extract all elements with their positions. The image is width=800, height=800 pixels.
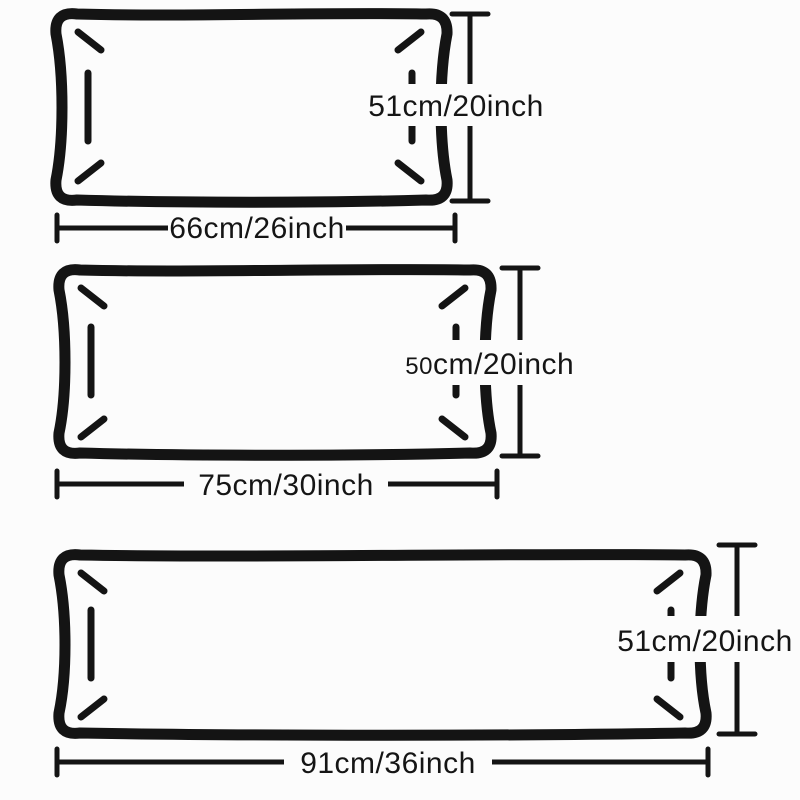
pillow-1-group: 51cm/20inch 66cm/26inch <box>56 14 560 245</box>
pillow-2-height-label-units: cm/20inch <box>433 348 574 381</box>
pillow-2-group: 50 cm/20inch 75cm/30inch <box>57 268 590 502</box>
pillow-size-diagram: 51cm/20inch 66cm/26inch 50 cm/20inch 75c… <box>0 0 800 800</box>
pillow-3-group: 51cm/20inch 91cm/36inch <box>57 545 800 780</box>
pillow-1-height-label: 51cm/20inch <box>368 90 544 123</box>
pillow-2-height-label-number: 50 <box>405 353 433 380</box>
pillow-3-width-label: 91cm/36inch <box>300 747 476 780</box>
diagram-svg: 51cm/20inch 66cm/26inch 50 cm/20inch 75c… <box>0 0 800 800</box>
pillow-1-width-label: 66cm/26inch <box>169 212 345 245</box>
pillow-2-width-label: 75cm/30inch <box>198 469 374 502</box>
pillow-3-height-label: 51cm/20inch <box>617 625 793 658</box>
